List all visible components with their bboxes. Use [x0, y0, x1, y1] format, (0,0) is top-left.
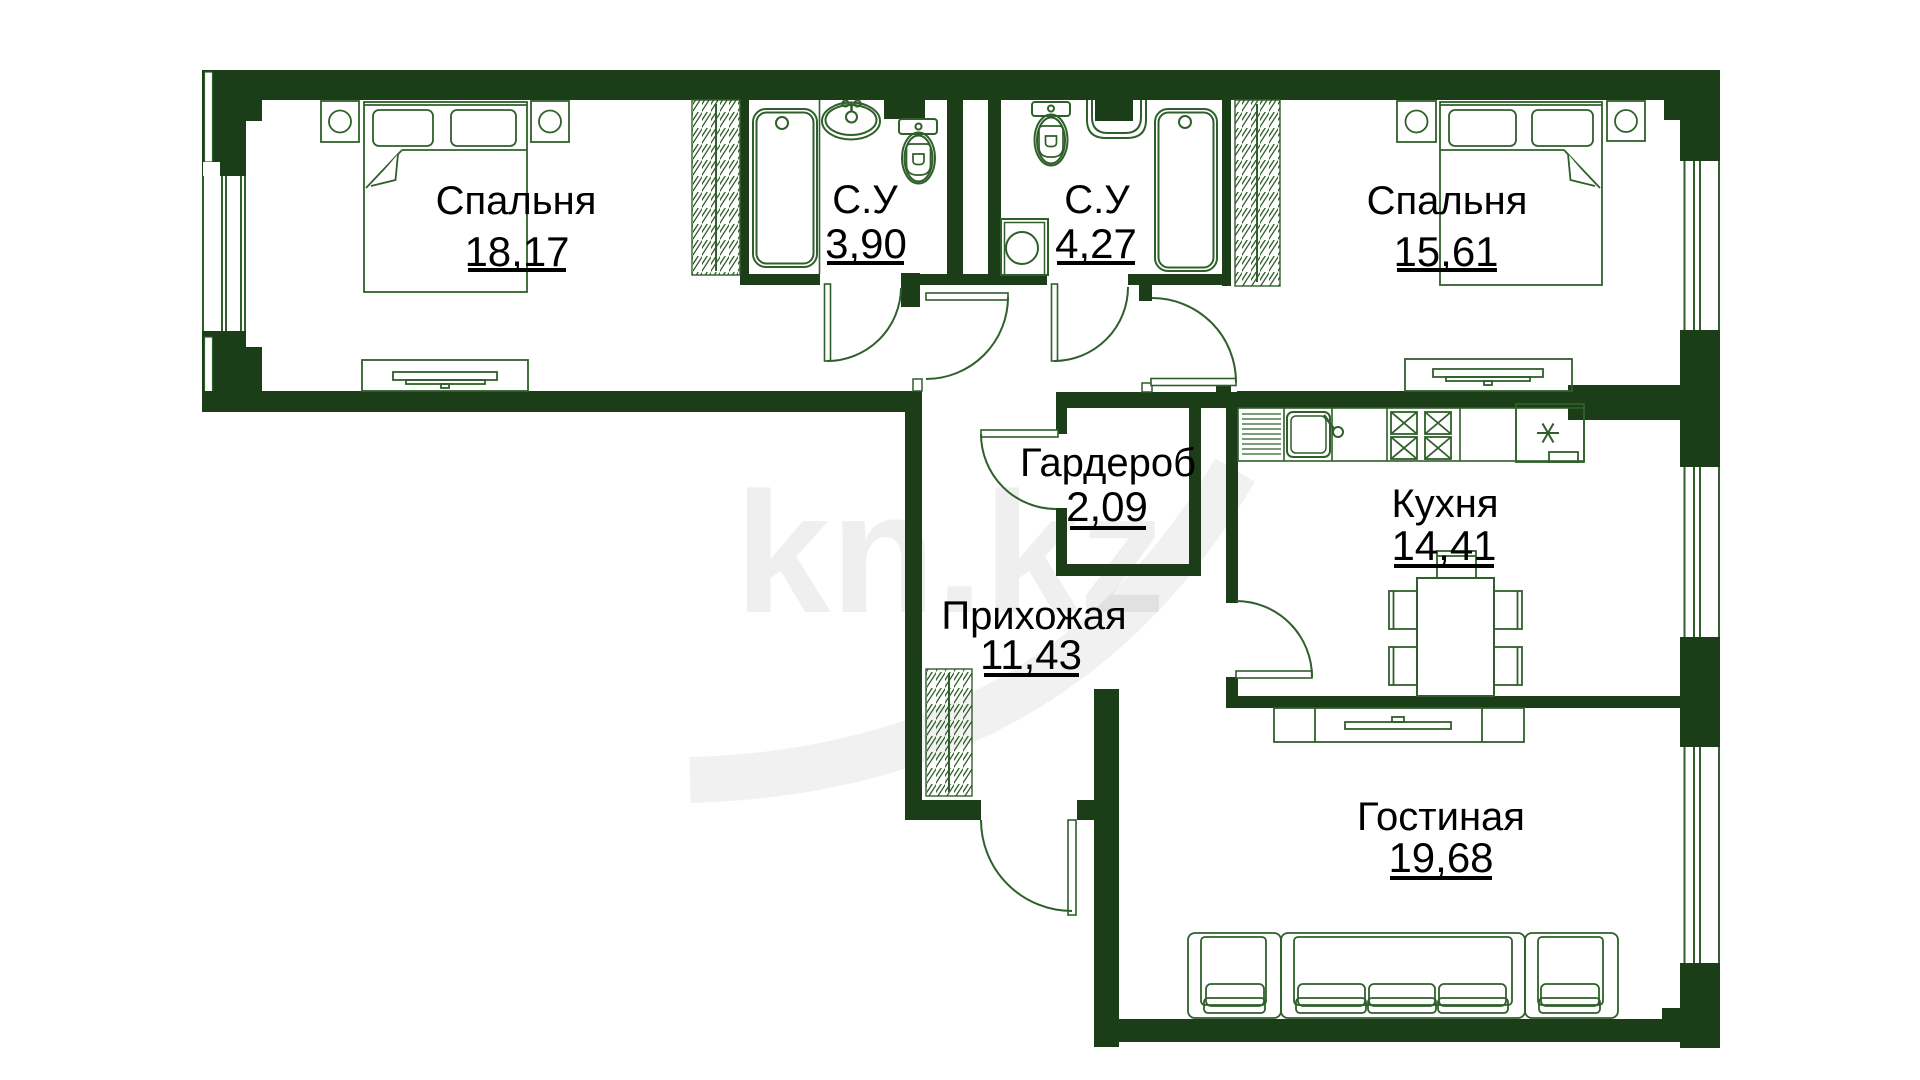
svg-text:Кухня: Кухня — [1391, 482, 1498, 526]
svg-text:15,61: 15,61 — [1393, 228, 1498, 275]
svg-text:19,68: 19,68 — [1388, 834, 1493, 881]
svg-text:Гардероб: Гардероб — [1020, 441, 1196, 485]
svg-text:С.У: С.У — [1064, 178, 1130, 222]
svg-text:Спальня: Спальня — [1367, 179, 1528, 223]
svg-text:Спальня: Спальня — [436, 179, 597, 223]
svg-text:11,43: 11,43 — [980, 631, 1082, 678]
svg-text:3,90: 3,90 — [825, 220, 907, 267]
svg-text:С.У: С.У — [832, 178, 898, 222]
svg-text:2,09: 2,09 — [1066, 483, 1148, 530]
svg-text:18,17: 18,17 — [464, 228, 569, 275]
svg-text:14,41: 14,41 — [1391, 522, 1496, 569]
svg-text:Гостиная: Гостиная — [1357, 795, 1525, 839]
svg-text:4,27: 4,27 — [1055, 220, 1137, 267]
